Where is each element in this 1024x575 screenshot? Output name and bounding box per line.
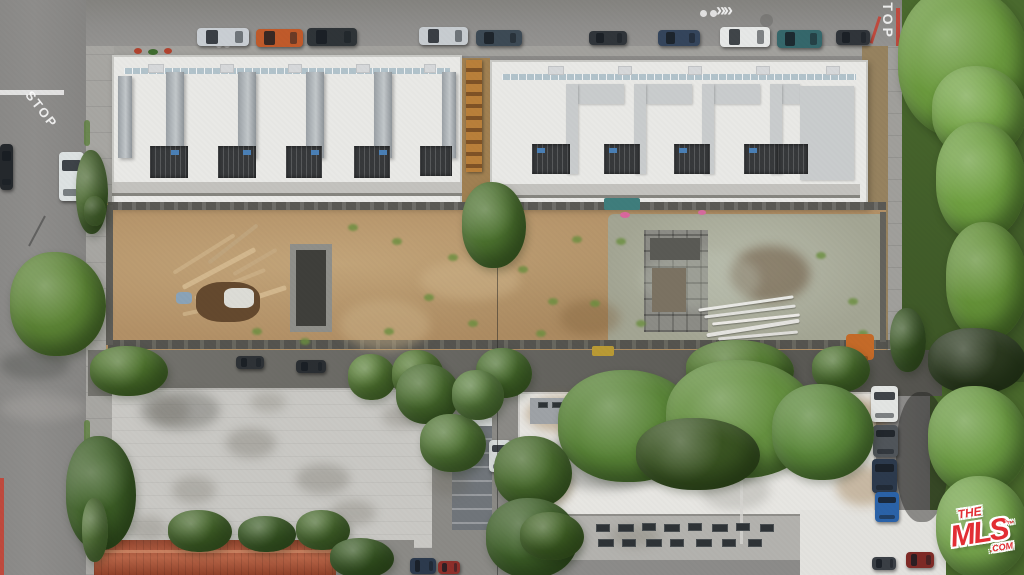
rear-walkway-right [498,184,860,198]
blue-fixture [537,148,545,153]
vehicle-glass [442,563,447,573]
vehicle [875,492,899,522]
vehicle-glass [241,358,247,368]
vehicle-glass [842,32,849,43]
vehicle-glass [757,30,765,44]
vehicle-glass [875,413,893,418]
vehicle [256,29,303,47]
weed-patch [548,298,558,305]
themls-watermark-logo: THE MLS™ .COM [937,500,1024,575]
pink-marker [698,210,706,215]
weed-patch [392,238,402,245]
rear-walkway-left [112,182,462,196]
weed-patch [384,328,394,335]
courtyard-patio [150,146,188,178]
vehicle-glass [874,392,895,400]
roof-section [800,86,854,180]
skylight [538,402,548,408]
skylight-building [560,514,802,560]
pink-marker [620,212,630,218]
tile-roof-ridge [96,550,334,553]
vehicle-glass [2,151,12,161]
weed-patch [848,298,858,305]
vehicle-glass [911,554,917,566]
surface-stain [296,464,350,494]
weed-patch [590,300,600,307]
crosswalk-line [0,90,64,95]
surface-stain [0,395,86,421]
vehicle-glass [256,358,260,367]
vehicle-glass [235,31,243,43]
vehicle [419,27,468,45]
tree [90,346,168,396]
construction-lift-mast [466,60,482,172]
weed-patch [572,236,582,243]
blue-fixture [171,150,179,155]
vehicle [197,28,249,46]
roof-hatch [356,64,370,73]
vehicle-glass [484,32,494,44]
tree [10,252,106,356]
yellow-equipment [592,346,614,356]
surface-stain [430,470,470,496]
surface-stain [172,476,216,504]
tree [348,354,396,400]
courtyard-patio [778,144,808,174]
roof-hatch [618,66,632,75]
roof-fin [118,76,132,158]
vehicle-glass [890,559,894,568]
skylight [618,524,634,532]
surface-stain [420,260,520,300]
tree [928,328,1024,394]
weed-patch [300,338,310,345]
tree [452,370,504,420]
vehicle-glass [455,30,462,42]
skylight [722,539,736,547]
roof-section [714,84,760,104]
vehicle-glass [879,515,895,520]
surface-stain [340,300,430,350]
weed-patch [816,252,826,259]
vehicle-glass [316,30,327,44]
skylight [688,523,702,531]
vehicle-glass [876,430,895,437]
skylight [598,539,614,547]
roof-section [578,84,624,104]
retaining-wall-left [106,205,113,345]
skylight [646,539,662,547]
planting-strip-flower [134,48,142,54]
structure-cell [650,238,700,260]
tree [330,538,394,575]
skylight [670,539,684,547]
tree [238,516,296,552]
vehicle-glass [429,561,433,572]
vehicle-glass [666,32,675,44]
vehicle-glass [290,32,297,44]
skylight [712,524,728,532]
vehicle-glass [510,33,517,44]
blue-fixture [243,150,251,155]
roof-hatch [424,64,436,73]
vehicle [777,30,822,48]
blue-fixture [749,148,757,153]
bike-marking-dot [700,10,707,17]
roof-hatch [288,64,302,73]
planting-strip-shrub [148,49,158,55]
white-tarp [224,288,254,308]
weed-patch [468,320,478,327]
weed-patch [518,266,528,273]
tree [890,308,926,372]
vehicle [236,356,264,369]
skylight [622,539,636,547]
vehicle-glass [689,33,695,44]
vehicle [871,386,898,422]
vehicle-glass [876,485,893,490]
roof-hatch [756,66,770,75]
blue-tarp [176,292,192,304]
vehicle-glass [861,32,866,42]
vehicle-glass [206,30,217,44]
tree [636,418,760,490]
roof-hatch [826,66,840,75]
weed-patch [448,254,458,261]
tree [84,196,106,226]
skylight [748,539,762,547]
bike-marking-dot [710,10,717,17]
weed-patch [348,224,358,231]
vehicle-glass [596,33,604,44]
skylight [664,524,680,532]
vehicle-glass [318,362,323,371]
tree [520,512,584,560]
vehicle [438,561,460,574]
vehicle-glass [344,31,352,43]
skylight [696,539,712,547]
roof-section [782,84,800,104]
tree [420,414,486,472]
bike-lane-chevrons: »» [716,0,730,21]
vehicle-glass [876,559,881,569]
weed-patch [636,320,646,327]
skylight [760,524,774,532]
aerial-photo: STOP STOP »» »» THE MLS™ .COM [0,0,1024,575]
vehicle-glass [875,464,894,471]
vehicle [410,558,436,574]
vehicle [589,31,627,45]
skylight [596,524,610,532]
stop-road-marking-top: STOP [880,0,896,50]
structure-tarp [652,268,686,312]
manhole-cover [760,14,773,27]
vehicle-glass [2,179,11,186]
vehicle-glass [877,449,894,454]
weed-patch [616,238,626,245]
vehicle [0,144,13,190]
vehicle [307,28,357,46]
vehicle [720,27,770,47]
vehicle-glass [264,31,274,45]
vehicle-glass [810,33,817,45]
vehicle-glass [301,362,308,372]
vehicle-glass [617,33,623,43]
blue-fixture [609,148,617,153]
parkway-grass [84,120,90,146]
blue-fixture [679,148,687,153]
vehicle-glass [428,29,439,43]
planting-strip-flower [164,48,172,54]
surface-stain [128,516,168,542]
tree [462,182,526,268]
vehicle [476,30,522,46]
weed-patch [536,330,546,337]
courtyard-patio [420,146,452,176]
roof-hatch [688,66,702,75]
tree [168,510,232,552]
vehicle-glass [878,497,896,504]
tree [82,498,108,562]
surface-stain [250,392,286,412]
roof-hatch [220,64,234,73]
vehicle [872,557,896,570]
weed-patch [252,328,262,335]
blue-fixture [311,150,319,155]
vehicle [296,360,326,373]
roof-hatch [148,64,164,73]
vehicle [658,30,700,46]
vehicle [906,552,934,568]
vehicle [872,459,897,493]
retaining-wall-right [880,212,886,342]
vehicle-glass [926,555,930,566]
skylight [736,523,750,531]
red-curb [0,478,4,575]
vehicle [836,30,870,45]
vehicle-glass [415,560,421,572]
roof-section [646,84,692,104]
tree [946,222,1024,340]
tree [772,384,874,480]
vehicle-glass [785,32,795,46]
weed-patch [424,294,434,301]
concrete-shaft [290,244,332,332]
teal-bin [604,198,640,210]
skylight [642,523,656,531]
blue-fixture [379,150,387,155]
vehicle-glass [729,29,740,44]
surface-stain [150,398,190,424]
vehicle [873,425,898,457]
roof-hatch [548,66,564,75]
surface-stain [226,428,276,458]
vehicle-glass [454,563,457,572]
